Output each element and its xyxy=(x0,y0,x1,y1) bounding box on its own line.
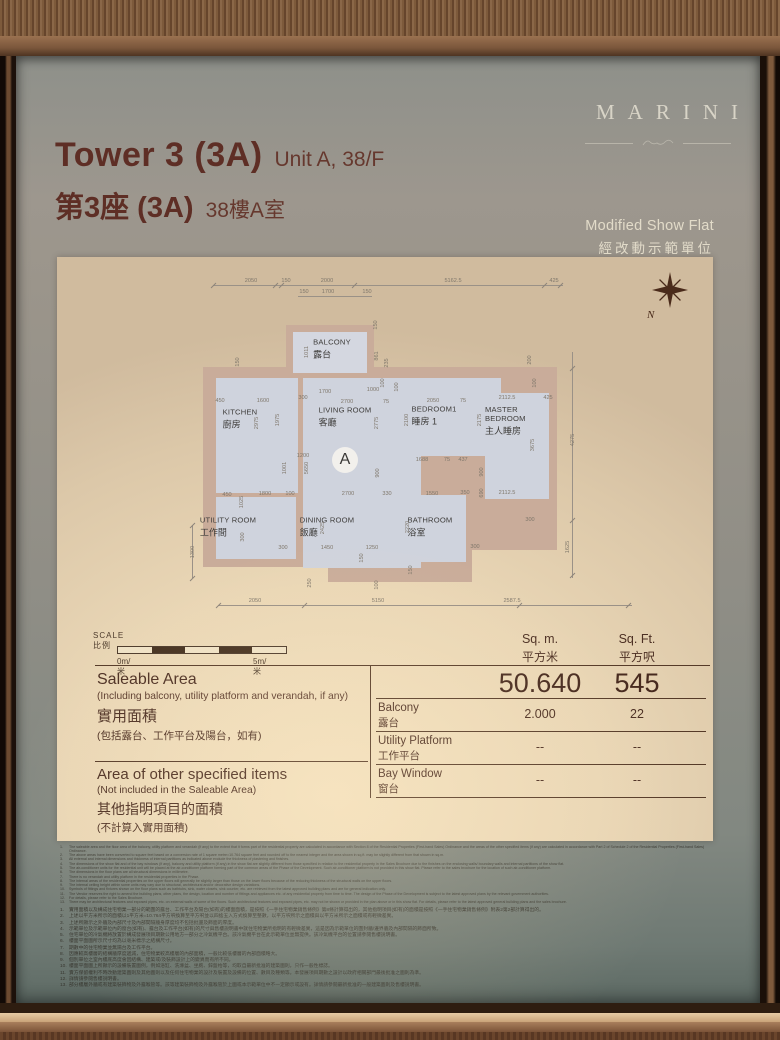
table-row: Balcony露台2.00022 xyxy=(376,700,706,731)
dimension-label: 150 xyxy=(359,553,365,562)
note-item: 13.There may be architectural features a… xyxy=(60,901,720,905)
other-zh-sub: (不計算入實用面積) xyxy=(97,820,372,835)
dimline-top xyxy=(213,285,563,286)
dimension-label: 2112.5 xyxy=(499,395,516,401)
scale-bar: SCALE 比例 0m/米 5m/米 xyxy=(93,631,124,651)
dimension-label: 100 xyxy=(380,378,386,387)
unit-floor-zh: 38樓A室 xyxy=(206,194,285,224)
table-rule xyxy=(376,764,706,765)
dimension-label: 900 xyxy=(375,468,381,477)
dimension-label: 330 xyxy=(382,491,391,497)
dimension-label: 690 xyxy=(479,488,485,497)
dimension-label: 2700 xyxy=(342,491,354,497)
other-zh: 其他指明項目的面積 xyxy=(97,799,372,819)
table-rule xyxy=(376,731,706,732)
north-compass-icon xyxy=(651,271,689,309)
table-rule xyxy=(376,698,706,699)
notes-english: 1.The saleable area and the floor area o… xyxy=(60,846,720,906)
frame-bottom-low xyxy=(0,1032,780,1040)
saleable-sqm-value: 50.640 xyxy=(499,668,582,699)
saleable-zh-sub: (包括露台、工作平台及陽台，如有) xyxy=(97,728,367,743)
frame-left xyxy=(0,56,16,1006)
dimension-label: 1550 xyxy=(426,491,438,497)
wall-master-ext xyxy=(468,500,557,550)
room-label: BATHROOM浴室 xyxy=(408,516,453,539)
dimension-label: 5150 xyxy=(372,598,384,604)
dimension-label: 2975 xyxy=(254,417,260,429)
other-en-sub: (Not included in the Saleable Area) xyxy=(97,785,372,796)
title-english: Tower 3 (3A) Unit A, 38/F xyxy=(55,136,384,175)
dimension-label: 235 xyxy=(384,358,390,367)
dimension-label: 350 xyxy=(460,490,469,496)
sqft-zh: 平方呎 xyxy=(602,648,672,665)
brand-script-icon xyxy=(641,138,675,148)
dimension-label: 1600 xyxy=(257,398,269,404)
col-header-sqm: Sq. m. 平方米 xyxy=(505,632,575,665)
modified-showflat-en: Modified Show Flat xyxy=(585,218,714,234)
dimension-label: 4275 xyxy=(570,434,576,446)
frame-top-wood xyxy=(0,0,780,36)
dimension-label: 2587.5 xyxy=(503,598,520,604)
dimension-label: 75 xyxy=(444,457,450,463)
saleable-en: Saleable Area xyxy=(97,671,367,689)
table-row: Bay Window窗台---- xyxy=(376,766,706,797)
dimension-label: 1200 xyxy=(297,453,309,459)
note-item: 2.上述以平方米所示的面積以1平方米=10.764平方呎換算至平方呎並以四捨五入… xyxy=(60,914,720,920)
dimension-label: 1025 xyxy=(239,496,245,508)
dimension-label: 2175 xyxy=(477,414,483,426)
modified-showflat-zh: 經改動示範單位 xyxy=(585,237,714,257)
dimension-label: 150 xyxy=(235,357,241,366)
note-item: 7.期數中的住宅物業並無陽台及工作平台。 xyxy=(60,946,720,952)
dimension-label: 3675 xyxy=(530,439,536,451)
dimension-label: 1250 xyxy=(366,545,378,551)
dimension-label: 2050 xyxy=(249,598,261,604)
dimension-label: 1700 xyxy=(319,389,331,395)
dimension-label: 2050 xyxy=(245,278,257,284)
dimension-label: 2050 xyxy=(427,398,439,404)
saleable-sqft-value: 545 xyxy=(614,668,659,699)
dimline-right xyxy=(572,352,573,578)
dimline-bottom xyxy=(218,605,632,606)
dimension-label: 425 xyxy=(543,395,552,401)
title-chinese: 第3座 (3A) 38樓A室 xyxy=(55,184,285,226)
note-item: 13.部分樓層外牆或有建築裝飾物及外露喉管等。該等建築裝飾物及外露喉管於上圖或本… xyxy=(60,983,720,989)
unit-floor-en: Unit A, 38/F xyxy=(275,148,385,172)
dimension-label: 450 xyxy=(215,398,224,404)
frame-bottom-highlight xyxy=(0,1013,780,1022)
dimension-label: 2220 xyxy=(405,521,411,533)
brand-logo-flourish xyxy=(583,138,733,148)
brand-logo: MARINI xyxy=(583,100,733,125)
note-item: 11.The Vendor reserves the right to amen… xyxy=(60,893,720,897)
dimension-label: 300 xyxy=(525,517,534,523)
dimension-label: 200 xyxy=(527,355,533,364)
dimension-label: 100 xyxy=(285,491,294,497)
dimension-label: 1688 xyxy=(416,457,428,463)
sqm-en: Sq. m. xyxy=(505,632,575,646)
table-row: Utility Platform工作平台---- xyxy=(376,733,706,764)
unit-marker: A xyxy=(332,447,358,473)
dimension-label: 5162.5 xyxy=(444,278,461,284)
dimension-label: 100 xyxy=(532,378,538,387)
dimension-label: 5650 xyxy=(304,462,310,474)
dimension-label: 2000 xyxy=(321,278,333,284)
tower-name-en: Tower 3 (3A) xyxy=(55,136,263,175)
room-label: LIVING ROOM客廳 xyxy=(319,406,372,429)
dimension-label: 2775 xyxy=(374,417,380,429)
table-rule xyxy=(376,797,706,798)
room-label: MASTER BEDROOM主人睡房 xyxy=(485,405,541,437)
saleable-zh: 實用面積 xyxy=(97,705,367,726)
dimension-label: 900 xyxy=(479,467,485,476)
dimension-label: 1000 xyxy=(367,387,379,393)
note-item: 4.示範單位及示範單位內的窗台(如有)、露台及工作平台(如有)的尺寸與售樓說明書… xyxy=(60,927,720,933)
note-item: 8.因應較高樓層的結構牆厚度遞減，住宅物業較高樓層的內部面積，一般比較低樓層的內… xyxy=(60,952,720,958)
dimension-label: 75 xyxy=(383,399,389,405)
frame-bottom-mid xyxy=(0,1022,780,1032)
dimension-label: 250 xyxy=(307,578,313,587)
modified-showflat-label: Modified Show Flat 經改動示範單位 xyxy=(585,218,714,257)
dimension-label: 425 xyxy=(549,278,558,284)
floor-plan: BALCONY露台KITCHEN廚房LIVING ROOM客廳BEDROOM1睡… xyxy=(95,265,695,620)
dimension-label: 1001 xyxy=(282,462,288,474)
dimension-label: 1450 xyxy=(321,545,333,551)
note-item: 5.住宅單位的冷氣機將放置於構成發展項目期數公用地方一部分之冷氣機平台。該冷氣機… xyxy=(60,933,720,939)
room-label: DINING ROOM飯廳 xyxy=(300,516,355,539)
dimline-top2 xyxy=(298,296,372,297)
room-label: KITCHEN廚房 xyxy=(223,408,258,431)
other-items-block: Area of other specified items (Not inclu… xyxy=(97,766,372,835)
dimension-label: 150 xyxy=(362,289,371,295)
dimension-label: 2700 xyxy=(341,399,353,405)
note-item: 6.樓面平面圖所示尺寸均為以毫米標示之結構尺寸。 xyxy=(60,939,720,945)
dimension-label: 300 xyxy=(298,395,307,401)
dimension-label: 861 xyxy=(374,351,380,360)
frame-right xyxy=(760,56,780,1006)
col-header-sqft: Sq. Ft. 平方呎 xyxy=(602,632,672,665)
dimension-label: 450 xyxy=(222,492,231,498)
table-rule-top xyxy=(95,665,710,666)
dimension-label: 75 xyxy=(460,398,466,404)
saleable-en-sub: (Including balcony, utility platform and… xyxy=(97,691,367,702)
note-item: 11.賣方保留權利不時改動建築圖則及其他圖則以及任何住宅物業的設計及裝置及設備的… xyxy=(60,971,720,977)
dimension-label: 1300 xyxy=(190,546,196,558)
note-item: 1.實用面積以及構成住宅物業一部分的範圍的露台、工作平台及陽台(如有)的樓面面積… xyxy=(60,908,720,914)
dimension-label: 1700 xyxy=(322,289,334,295)
frame-bottom-shadow xyxy=(0,1003,780,1013)
dimension-label: 1625 xyxy=(565,541,571,553)
dimension-tick xyxy=(190,576,196,582)
tower-name-zh: 第3座 (3A) xyxy=(55,184,194,226)
dimension-label: 150 xyxy=(281,278,290,284)
scale-label-en: SCALE xyxy=(93,631,124,640)
scale-bar-segments xyxy=(117,646,287,654)
sqft-en: Sq. Ft. xyxy=(602,632,672,646)
dimension-label: 1011 xyxy=(304,346,310,358)
dimension-label: 1975 xyxy=(275,414,281,426)
dimension-label: 100 xyxy=(374,580,380,589)
dimension-label: 2425 xyxy=(320,522,326,534)
dimension-label: 2112.5 xyxy=(499,490,516,496)
dimension-label: 2100 xyxy=(404,414,410,426)
room-label: UTILITY ROOM工作間 xyxy=(200,516,256,539)
notes-chinese: 1.實用面積以及構成住宅物業一部分的範圍的露台、工作平台及陽台(如有)的樓面面積… xyxy=(60,908,720,989)
other-en: Area of other specified items xyxy=(97,766,372,783)
frame-top-band xyxy=(0,36,780,56)
room-kitchen xyxy=(216,378,298,493)
dimension-label: 1800 xyxy=(259,491,271,497)
room-label: BALCONY露台 xyxy=(313,338,351,361)
dimension-label: 100 xyxy=(394,382,400,391)
dimension-label: 150 xyxy=(299,289,308,295)
dimension-label: 300 xyxy=(470,544,479,550)
dimension-label: 437 xyxy=(458,457,467,463)
dimension-label: 150 xyxy=(408,565,414,574)
sqm-zh: 平方米 xyxy=(505,648,575,665)
note-item: 9.個別單位之室內樓底高度會因結構、建築或/及裝飾設計上的變異而有所不同。 xyxy=(60,958,720,964)
north-label: N xyxy=(647,309,654,321)
note-item: 12.詳情請參閱售樓說明書。 xyxy=(60,977,720,983)
table-rule-left-mid xyxy=(95,761,368,762)
note-item: 10.樓面平面圖上所顯示的設備裝置圖例，例如浴缸、洗滌盆、坐廁、鋅盤枱等，均取自… xyxy=(60,964,720,970)
saleable-area-block: Saleable Area (Including balcony, utilit… xyxy=(97,671,367,743)
dimension-label: 300 xyxy=(278,545,287,551)
note-item: 3.上述所顯示之外牆及內部尺寸及內部間隔牆身厚度均不包括批盪及飾面的厚度。 xyxy=(60,921,720,927)
dimension-label: 150 xyxy=(373,320,379,329)
showflat-poster-photo: Tower 3 (3A) Unit A, 38/F 第3座 (3A) 38樓A室… xyxy=(0,0,780,1040)
dimension-label: 300 xyxy=(240,532,246,541)
room-label: BEDROOM1睡房 1 xyxy=(411,405,456,428)
